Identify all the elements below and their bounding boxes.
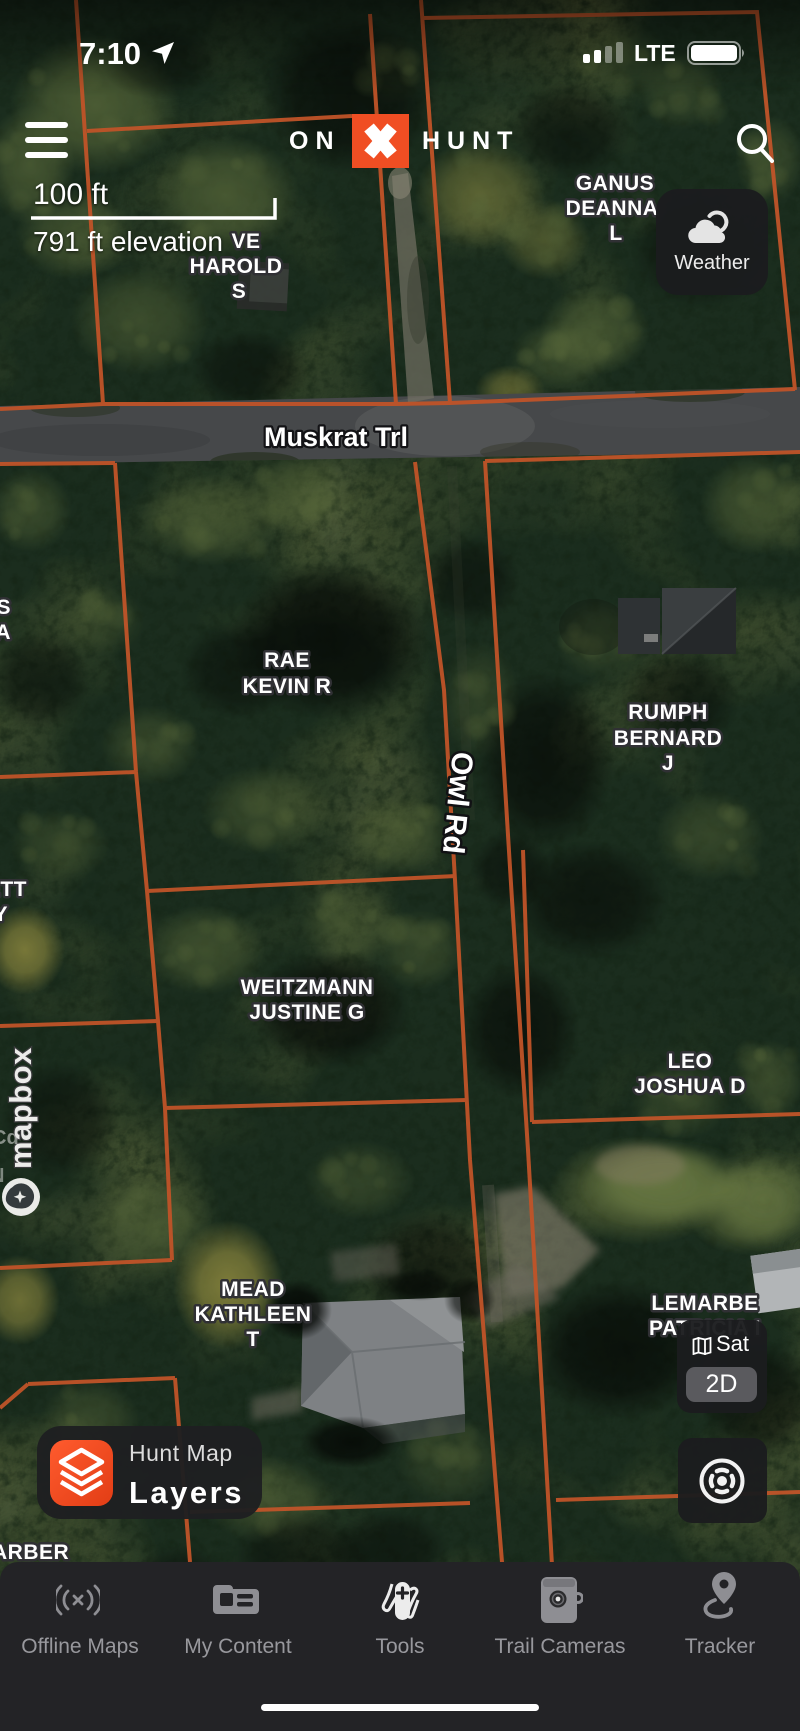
svg-text:GANUS: GANUS (576, 172, 654, 195)
svg-text:ARBER: ARBER (0, 1541, 69, 1564)
svg-text:VE: VE (231, 230, 260, 253)
svg-text:BERNARD: BERNARD (614, 727, 723, 750)
svg-text:RUMPH: RUMPH (628, 701, 708, 724)
svg-text:J: J (662, 752, 674, 775)
svg-text:MEAD: MEAD (221, 1278, 285, 1301)
svg-text:ETT: ETT (0, 878, 27, 901)
svg-text:DEANNA: DEANNA (566, 197, 659, 220)
svg-text:N: N (0, 1165, 4, 1187)
svg-text:mapbox: mapbox (3, 1047, 38, 1169)
svg-text:T: T (246, 1328, 259, 1351)
svg-text:A: A (0, 621, 11, 644)
svg-text:Y: Y (0, 903, 8, 926)
svg-text:LEO: LEO (668, 1050, 713, 1073)
svg-text:WEITZMANN: WEITZMANN (241, 976, 374, 999)
svg-text:LEMARBE: LEMARBE (651, 1292, 758, 1315)
svg-text:RAE: RAE (264, 649, 310, 672)
svg-text:Rd: Rd (436, 812, 473, 855)
svg-text:S: S (0, 596, 11, 619)
svg-text:Cɗ: Cɗ (0, 1127, 20, 1149)
svg-text:Owl: Owl (440, 750, 479, 808)
svg-text:KEVIN R: KEVIN R (243, 675, 332, 698)
svg-text:Muskrat Trl: Muskrat Trl (264, 422, 408, 452)
svg-text:L: L (609, 222, 622, 245)
svg-text:HAROLD: HAROLD (190, 255, 283, 278)
svg-text:JOSHUA D: JOSHUA D (634, 1075, 746, 1098)
svg-text:KATHLEEN: KATHLEEN (195, 1303, 312, 1326)
svg-text:JUSTINE G: JUSTINE G (249, 1001, 364, 1024)
svg-text:S: S (232, 280, 247, 303)
